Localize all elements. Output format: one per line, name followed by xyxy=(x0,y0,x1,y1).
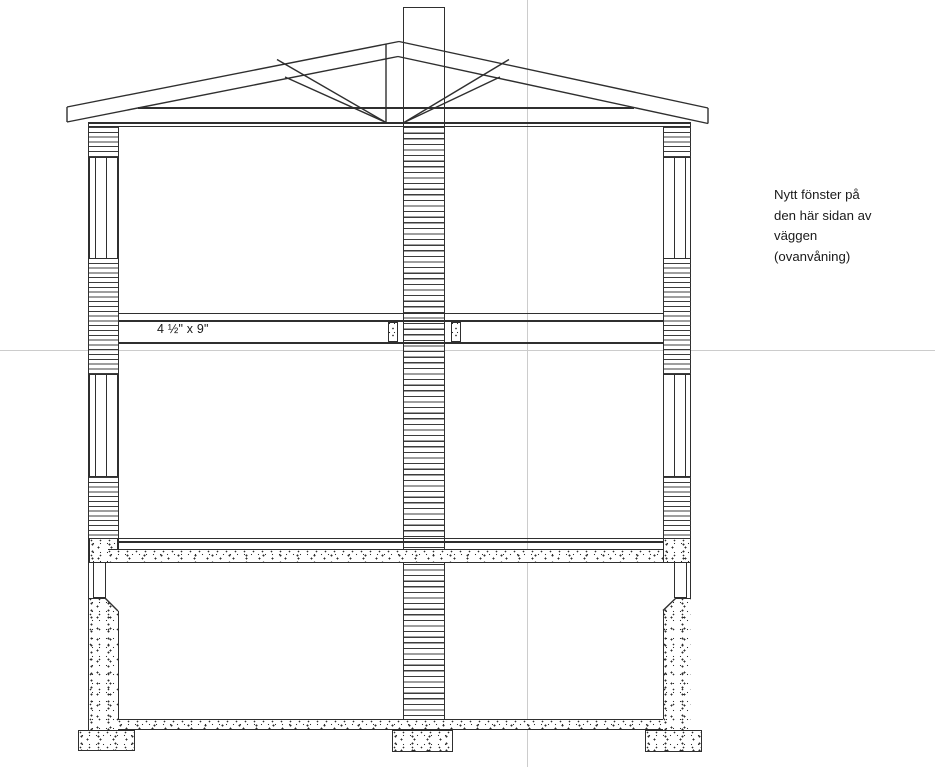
window-mullion xyxy=(106,158,107,258)
right-lower-window xyxy=(663,374,692,477)
left-wall-brick-top xyxy=(89,127,118,157)
left-foundation-top-edge xyxy=(89,598,106,599)
truss-strut-left-b xyxy=(285,77,386,123)
window-mullion xyxy=(685,158,686,258)
annotation-line: väggen xyxy=(774,226,924,247)
right-footing xyxy=(645,730,702,752)
left-lower-window xyxy=(89,374,118,477)
upper-ceiling-line-top xyxy=(88,122,691,124)
beam-dimension-label: 4 ½" x 9" xyxy=(157,322,209,336)
window-mullion xyxy=(674,158,675,258)
attic-chord-line xyxy=(138,107,634,109)
truss-strut-left-a xyxy=(277,60,386,123)
mid-floor-thin-line xyxy=(118,313,663,314)
right-foundation-inner-edge xyxy=(663,610,664,719)
right-foundation-top-edge xyxy=(676,598,692,599)
left-basement-window xyxy=(93,563,106,598)
annotation-line: (ovanvåning) xyxy=(774,247,924,268)
chimney-shaft xyxy=(403,127,445,719)
right-wall-brick-bottom xyxy=(664,477,691,538)
roof-line-left-top xyxy=(67,42,399,108)
annotation-line: den här sidan av xyxy=(774,206,924,227)
window-mullion xyxy=(685,375,686,476)
right-foundation-wall xyxy=(663,598,691,730)
annotation-new-window: Nytt fönster på den här sidan av väggen … xyxy=(774,185,924,267)
left-upper-window xyxy=(89,157,118,259)
right-wall-head-block xyxy=(663,538,692,563)
horizontal-centerline xyxy=(0,350,935,351)
annotation-line: Nytt fönster på xyxy=(774,185,924,206)
right-upper-window xyxy=(663,157,692,259)
window-mullion xyxy=(95,375,96,476)
vertical-centerline xyxy=(527,0,528,767)
left-wall-brick-bottom xyxy=(89,477,118,538)
upper-ceiling-line-bottom xyxy=(88,126,691,127)
right-wall-brick-middle xyxy=(664,258,691,374)
left-wall-brick-middle xyxy=(89,258,118,374)
right-wall-brick-top xyxy=(664,127,691,157)
roof-structure-svg xyxy=(0,0,935,767)
drawing-canvas[interactable]: 4 ½" x 9" xyxy=(0,0,935,767)
ground-ceiling-line-bottom xyxy=(88,541,691,543)
ground-ceiling-line-top xyxy=(88,538,691,539)
beam-bearing-block-right xyxy=(451,322,461,342)
ground-floor-slab xyxy=(108,549,663,563)
window-mullion xyxy=(674,375,675,476)
left-foundation-wall xyxy=(89,598,119,730)
roof-line-right-top xyxy=(399,42,708,109)
chimney-footing xyxy=(392,730,453,752)
right-basement-window xyxy=(674,563,687,598)
left-foundation-inner-edge xyxy=(118,611,119,719)
roof-line-left-bottom xyxy=(67,57,398,123)
beam-bearing-block-left xyxy=(388,322,398,342)
left-footing xyxy=(78,730,135,751)
basement-floor-slab xyxy=(118,719,663,730)
window-mullion xyxy=(95,158,96,258)
window-mullion xyxy=(106,375,107,476)
